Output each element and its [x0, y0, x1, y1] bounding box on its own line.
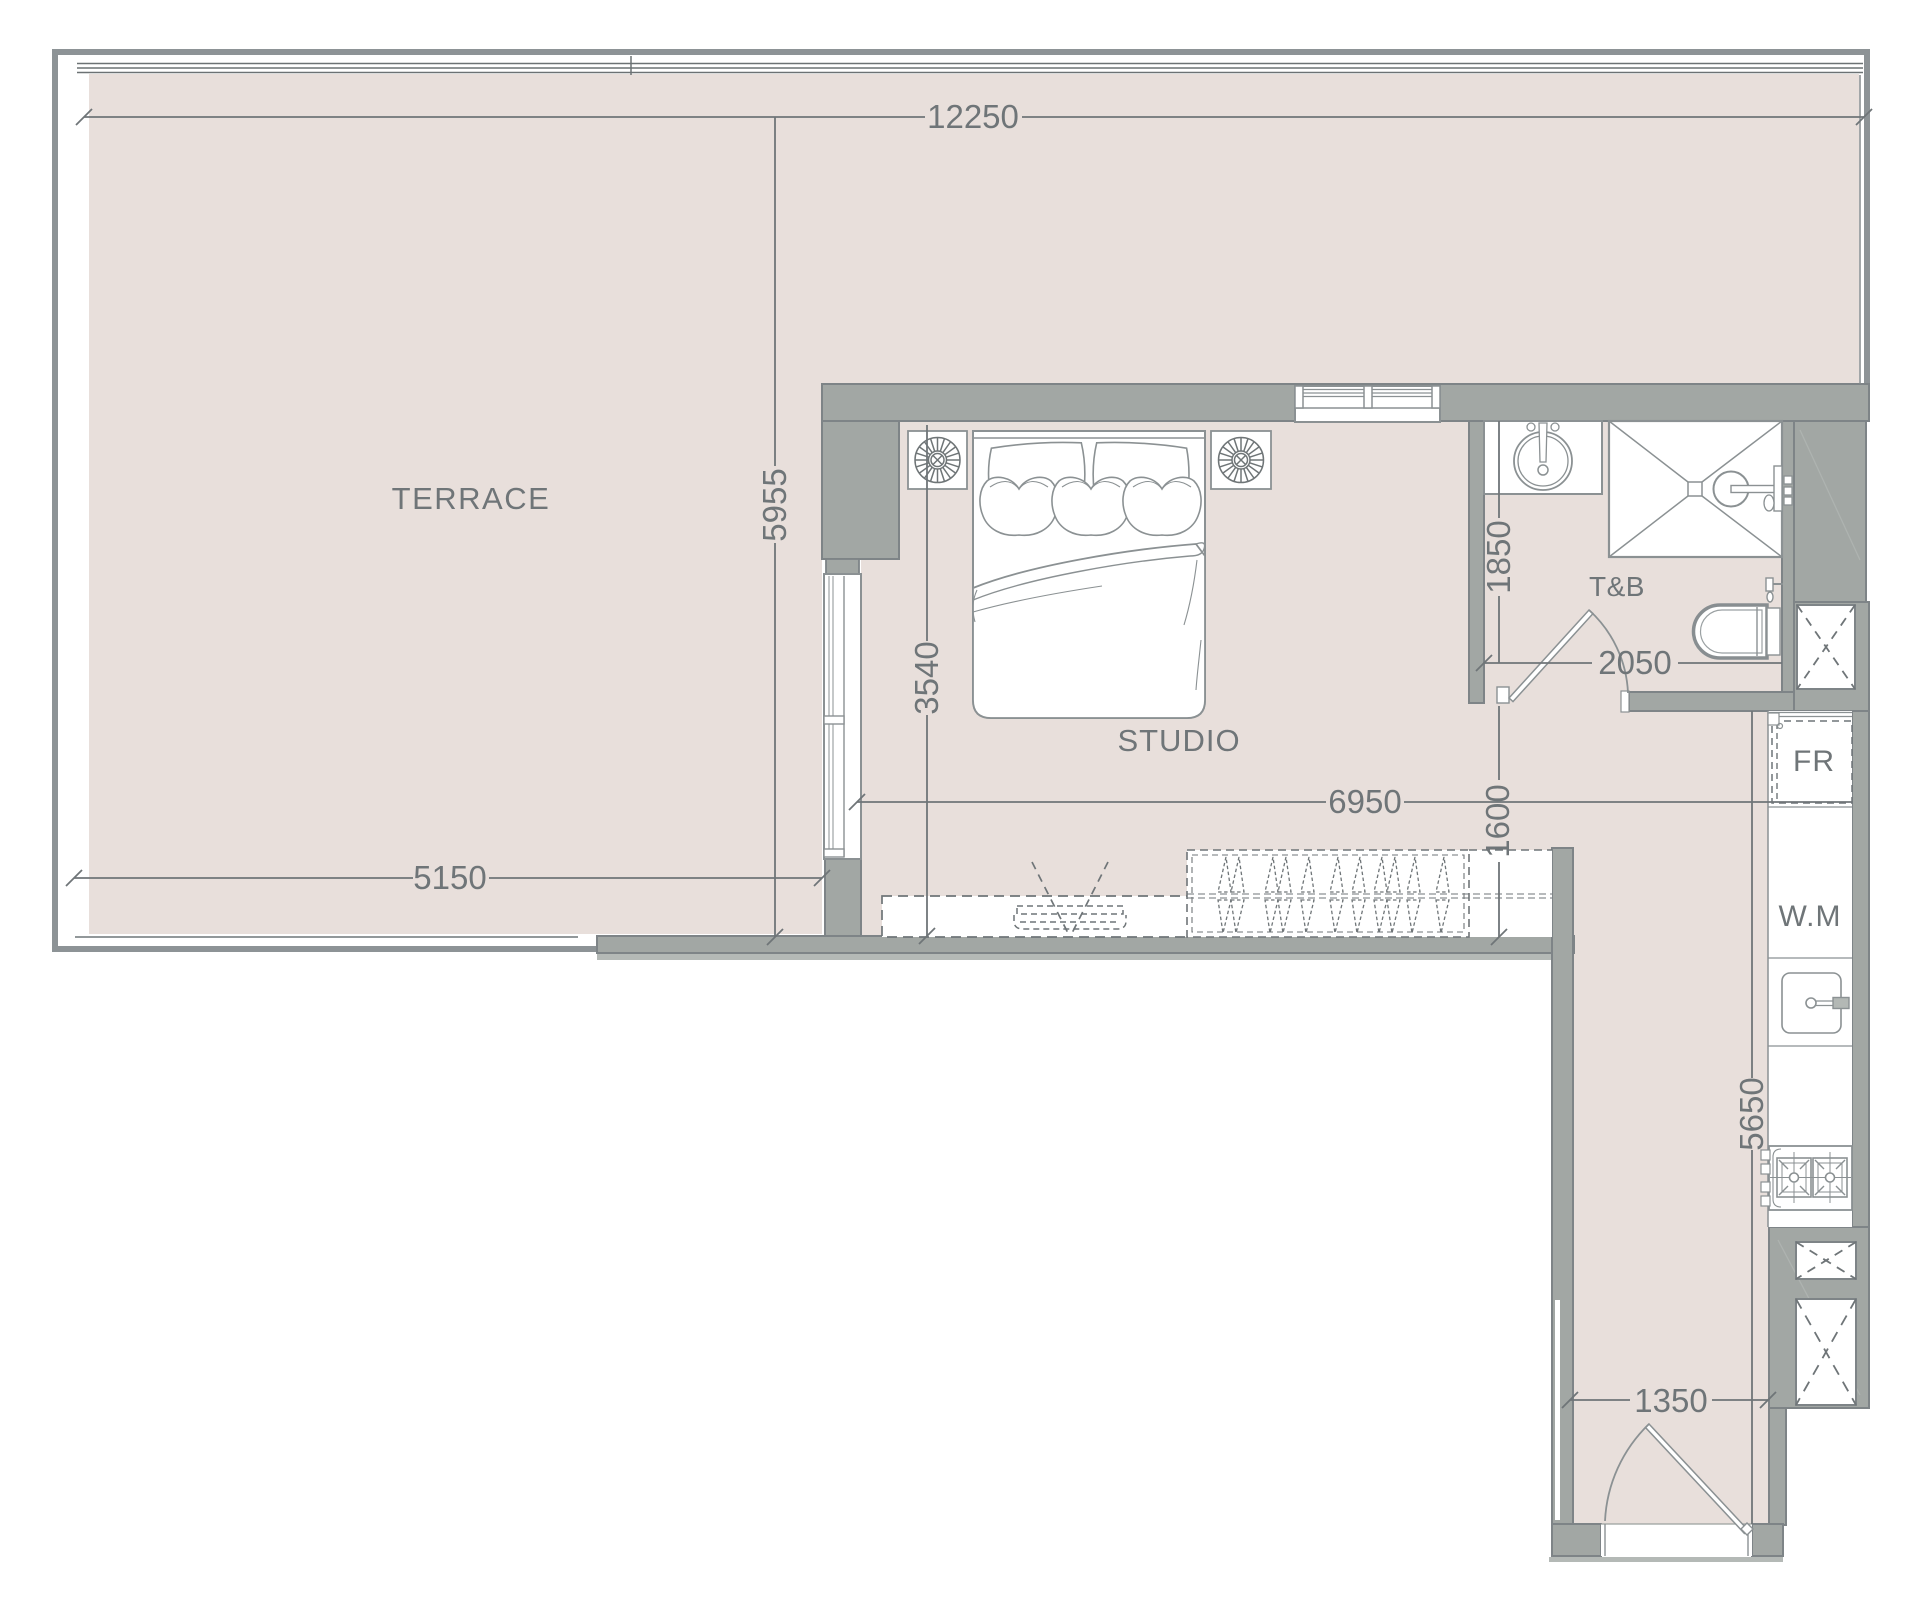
svg-text:STUDIO: STUDIO: [1117, 723, 1240, 758]
svg-text:W.M: W.M: [1779, 900, 1842, 933]
svg-text:T&B: T&B: [1589, 571, 1645, 602]
svg-text:1850: 1850: [1480, 520, 1517, 593]
svg-text:FR: FR: [1793, 745, 1835, 778]
svg-text:1600: 1600: [1479, 784, 1516, 857]
svg-text:5150: 5150: [413, 859, 486, 896]
svg-text:5955: 5955: [756, 468, 793, 541]
svg-text:1350: 1350: [1634, 1382, 1707, 1419]
svg-text:5650: 5650: [1733, 1077, 1770, 1150]
svg-text:6950: 6950: [1328, 783, 1401, 820]
svg-text:3540: 3540: [908, 641, 945, 714]
svg-text:2050: 2050: [1598, 644, 1671, 681]
svg-text:12250: 12250: [927, 98, 1019, 135]
svg-text:TERRACE: TERRACE: [392, 481, 551, 516]
